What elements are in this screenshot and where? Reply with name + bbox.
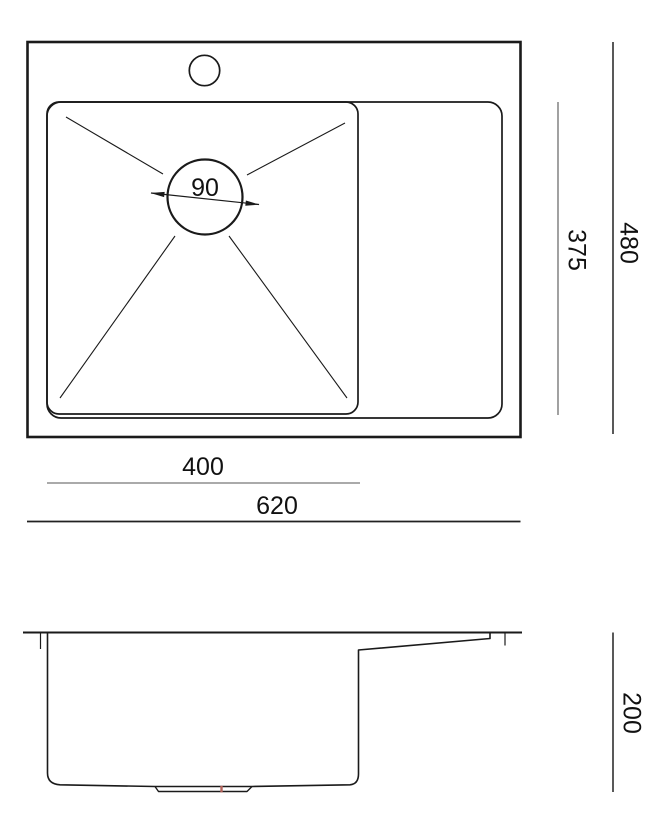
drawing-canvas: 90 400 620 375 480 200 (0, 0, 665, 829)
side-view (23, 633, 522, 793)
dim-label-drain-diameter: 90 (191, 174, 219, 202)
bowl-profile (48, 633, 491, 787)
dim-label-overall-depth: 480 (615, 222, 643, 264)
faucet-hole (189, 55, 219, 85)
top-view (28, 42, 521, 437)
sink-technical-drawing: 90 400 620 375 480 200 (0, 0, 665, 829)
dim-label-inner-depth: 375 (563, 229, 591, 271)
sink-rim-edge (47, 102, 502, 418)
drain-center-mark (220, 786, 222, 793)
dim-label-side-height: 200 (618, 692, 646, 734)
dim-label-overall-width: 620 (256, 492, 298, 520)
dimension-lines (27, 42, 613, 792)
bowl-edge (47, 102, 358, 414)
dimension-labels: 90 400 620 375 480 200 (182, 174, 645, 734)
dim-label-bowl-width: 400 (182, 453, 224, 481)
